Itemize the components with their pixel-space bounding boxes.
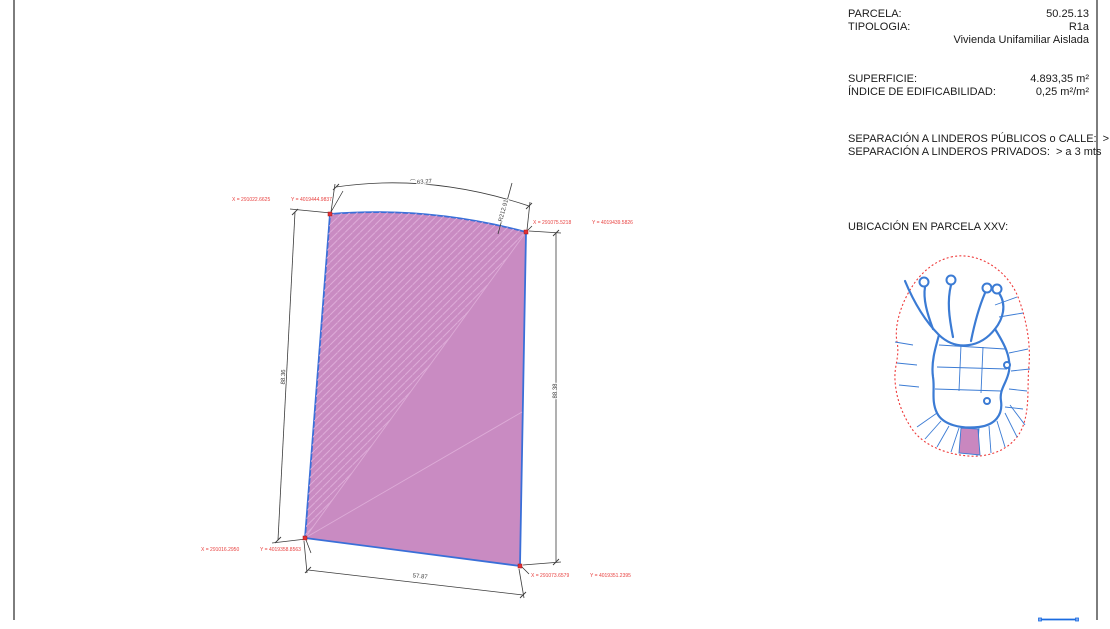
info-row-linderos-privados: SEPARACIÓN A LINDEROS PRIVADOS: > a 3 mt… — [848, 146, 1089, 159]
edificabilidad-label: ÍNDICE DE EDIFICABILIDAD: — [848, 86, 996, 99]
edificabilidad-value: 0,25 m²/m² — [1036, 86, 1089, 99]
tipologia-value: R1a — [1069, 21, 1089, 34]
location-map — [877, 249, 1053, 470]
superficie-value: 4.893,35 m² — [1030, 73, 1089, 86]
map-road-node — [984, 398, 990, 404]
vertex-marker-top-left — [328, 212, 332, 216]
linderos-privados-label: SEPARACIÓN A LINDEROS PRIVADOS: — [848, 146, 1050, 159]
tipologia-label: TIPOLOGIA: — [848, 21, 910, 34]
info-row-edificabilidad: ÍNDICE DE EDIFICABILIDAD: 0,25 m²/m² — [848, 86, 1089, 99]
info-group-identity: PARCELA: 50.25.13 TIPOLOGIA: R1a Viviend… — [848, 8, 1089, 47]
coord-label-bottom-right: X = 291073.6579 Y = 4019351.2395 — [531, 573, 631, 579]
map-culdesac-head — [947, 276, 956, 285]
map-road-node — [1004, 362, 1010, 368]
plan-sheet: { "colors": { "parcel-fill": "#c98bc2", … — [0, 0, 1110, 620]
tipologia-desc-value: Vivienda Unifamiliar Aislada — [953, 34, 1089, 47]
dimension-right: 88.38 — [523, 230, 561, 565]
coord-y: Y = 4019444.9837 — [291, 197, 332, 203]
coord-y: Y = 4019351.2395 — [590, 573, 631, 579]
map-culdesac-head — [920, 278, 929, 287]
linderos-publicos-label: SEPARACIÓN A LINDEROS PÚBLICOS o CALLE: — [848, 133, 1097, 146]
ubicacion-label: UBICACIÓN EN PARCELA XXV: — [848, 221, 1008, 233]
coord-label-top-left: X = 291022.6625 Y = 4019444.9837 — [232, 197, 332, 203]
info-group-surface: SUPERFICIE: 4.893,35 m² ÍNDICE DE EDIFIC… — [848, 73, 1089, 99]
vertex-marker-bottom-left — [303, 536, 307, 540]
parcela-label: PARCELA: — [848, 8, 902, 21]
map-roads — [905, 276, 1010, 428]
coord-y: Y = 4019439.5826 — [592, 220, 633, 226]
map-culdesac-head — [993, 285, 1002, 294]
info-row-tipologia-desc: Vivienda Unifamiliar Aislada — [848, 34, 1089, 47]
coord-label-bottom-left: X = 291016.2950 Y = 4019358.8563 — [201, 547, 301, 553]
coord-x: X = 291075.5218 — [533, 220, 571, 226]
coord-x: X = 291073.6579 — [531, 573, 569, 579]
coord-label-top-right: X = 291075.5218 Y = 4019439.5826 — [533, 220, 633, 226]
info-row-tipologia: TIPOLOGIA: R1a — [848, 21, 1089, 34]
dimension-left-label: 88.36 — [281, 369, 288, 385]
parcela-value: 50.25.13 — [1046, 8, 1089, 21]
coord-y: Y = 4019358.8563 — [260, 547, 301, 553]
superficie-label: SUPERFICIE: — [848, 73, 917, 86]
vertex-marker-bottom-right — [518, 564, 522, 568]
dimension-right-label: 88.38 — [553, 383, 559, 399]
coord-x: X = 291016.2950 — [201, 547, 239, 553]
info-row-parcela: PARCELA: 50.25.13 — [848, 8, 1089, 21]
coord-x: X = 291022.6625 — [232, 197, 270, 203]
dimension-top-label: 63.27 — [417, 179, 433, 186]
map-culdesac-head — [983, 284, 992, 293]
location-map-drawing — [877, 249, 1053, 465]
linderos-publicos-value: > a 6 mts — [1103, 133, 1110, 146]
dimension-top-arc-symbol: ⌒ — [410, 179, 416, 186]
info-group-ubicacion: UBICACIÓN EN PARCELA XXV: — [848, 221, 1089, 234]
selected-segment — [1037, 611, 1081, 629]
parcel-plan-drawing: 88.36 88.38 ⌒ 63.27 R212.91 57.87 — [0, 0, 840, 620]
linderos-privados-value: > a 3 mts — [1056, 146, 1102, 159]
leader-bottom-left — [306, 540, 311, 553]
info-row-linderos-publicos: SEPARACIÓN A LINDEROS PÚBLICOS o CALLE: … — [848, 133, 1089, 146]
vertex-marker-top-right — [524, 230, 528, 234]
dimension-radius-label: R212.91 — [498, 198, 510, 222]
sheet-border-right — [1096, 0, 1098, 620]
info-group-setbacks: SEPARACIÓN A LINDEROS PÚBLICOS o CALLE: … — [848, 133, 1089, 159]
dimension-bottom-label: 57.87 — [412, 573, 428, 581]
map-highlighted-parcel — [959, 428, 980, 455]
leader-bottom-right — [522, 567, 529, 574]
info-row-superficie: SUPERFICIE: 4.893,35 m² — [848, 73, 1089, 86]
